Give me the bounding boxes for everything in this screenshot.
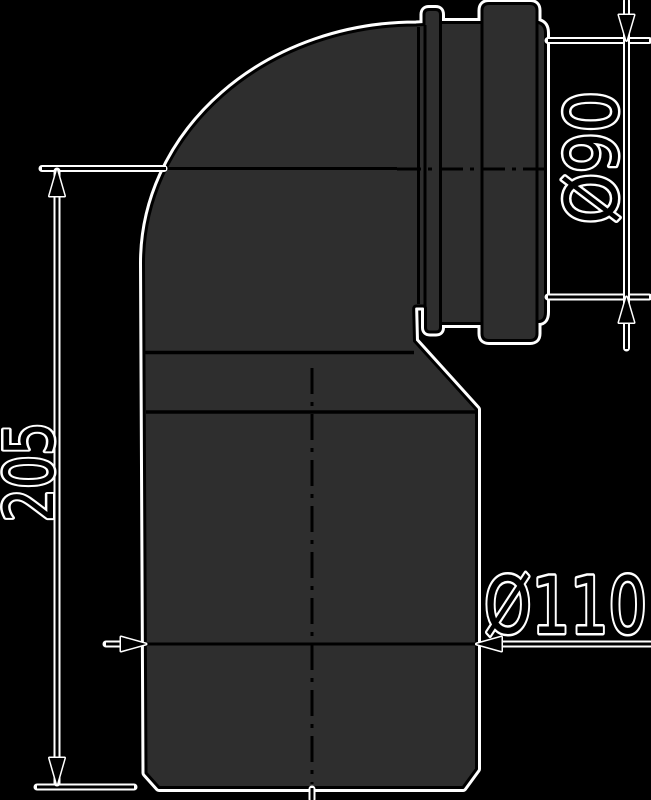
technical-drawing-canvas: 205 Ø90 Ø110 (0, 0, 651, 800)
dim-label-socket-diameter: Ø90 (550, 91, 634, 224)
dim-label-outlet-diameter: Ø110 (484, 562, 647, 652)
dim-label-height: 205 (0, 422, 70, 522)
